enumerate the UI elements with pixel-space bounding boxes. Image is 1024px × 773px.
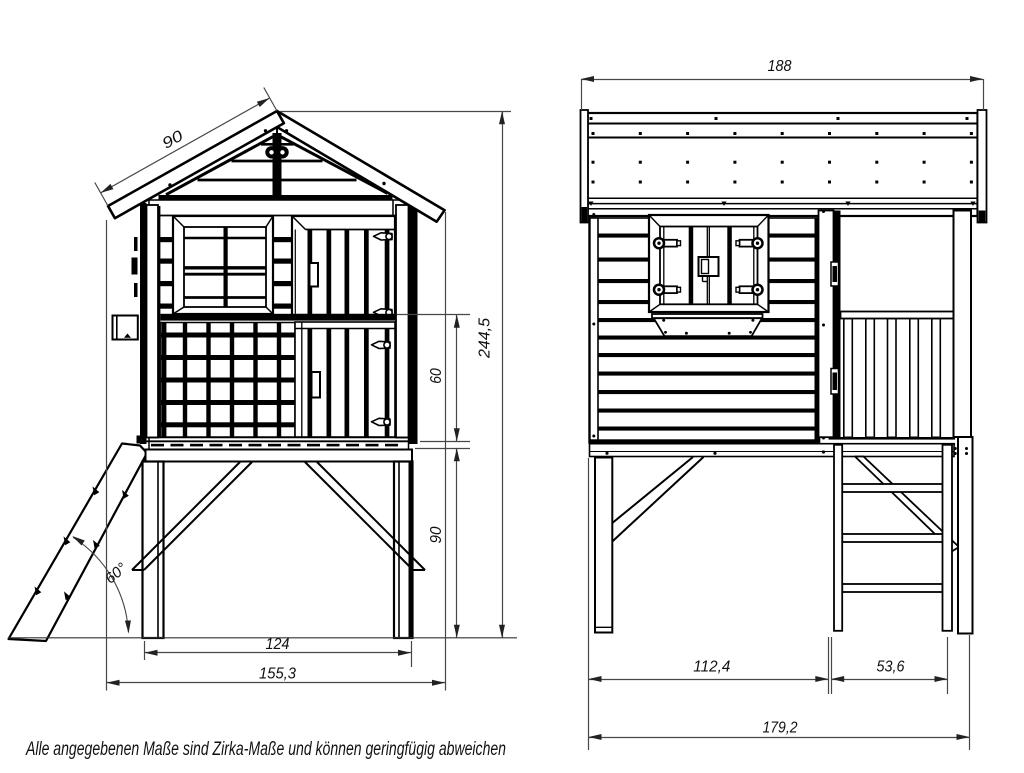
svg-text:155,3: 155,3 <box>259 666 296 683</box>
svg-text:124: 124 <box>266 636 290 653</box>
svg-text:112,4: 112,4 <box>693 659 730 676</box>
svg-text:60: 60 <box>428 368 445 384</box>
svg-text:188: 188 <box>768 58 792 75</box>
svg-text:Alle angegebenen Maße sind Zir: Alle angegebenen Maße sind Zirka-Maße un… <box>25 739 506 760</box>
svg-text:244,5: 244,5 <box>477 318 494 359</box>
svg-text:90: 90 <box>428 526 445 543</box>
svg-text:53,6: 53,6 <box>877 659 905 676</box>
svg-text:179,2: 179,2 <box>763 720 798 737</box>
